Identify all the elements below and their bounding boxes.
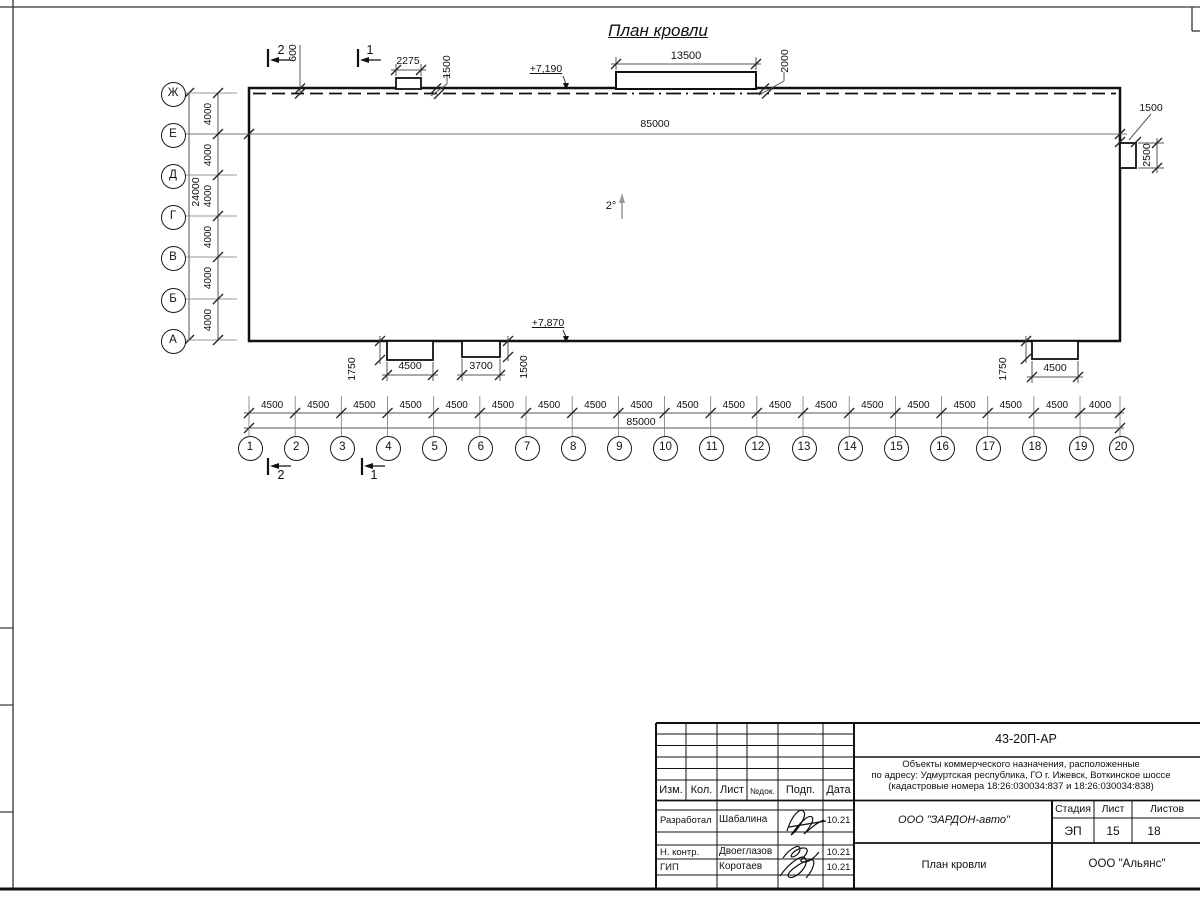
axis-bubble-11: 11 [699,436,724,461]
row-name: Коротаев [719,861,762,872]
axis-bubble-2: 2 [284,436,309,461]
axis-bubble-14: 14 [838,436,863,461]
contractor-name: ООО "Альянс" [1052,858,1200,870]
h-spacing-label: 4500 [435,400,479,412]
axis-bubble-17: 17 [976,436,1001,461]
section-1-top-label: 1 [361,44,379,57]
dim-canopy-small-height: 1500 [441,45,453,89]
company-name: ООО "ЗАРДОН-авто" [856,814,1052,826]
dim-line [563,76,566,84]
roof-slope-label: 2° [598,200,624,212]
dim-bottom-box3-width: 4500 [1031,362,1079,374]
v-spacing-label: 4000 [203,256,215,300]
section-1-bottom-label: 1 [365,469,383,482]
h-spacing-label: 4500 [1035,400,1079,412]
dim-bottom-box3-height: 1750 [997,347,1009,391]
row-name: Шабалина [719,814,767,825]
dim-bottom-box1-width: 4500 [386,360,434,372]
axis-bubble-15: 15 [884,436,909,461]
right-box [1120,143,1136,168]
elevation-bottom-label: +7,870 [520,317,576,329]
col-header-data: Дата [823,784,854,796]
h-spacing-label: 4500 [296,400,340,412]
row-role: Разработал [660,815,712,826]
sheet-number: 15 [1094,824,1132,838]
dim-right-box-width: 1500 [1123,102,1179,114]
col-header-list: Лист [717,784,747,796]
sheet-header: Лист [1094,803,1132,815]
h-spacing-label: 4500 [943,400,987,412]
canopy-large-box [616,72,756,89]
col-header-kol: Кол. [686,784,717,796]
elevation-top-label: +7,190 [518,63,574,75]
v-spacing-label: 4000 [203,298,215,342]
signature-korotaev [780,847,819,878]
project-description-line1: Объекты коммерческого назначения, распол… [852,759,1190,770]
axis-bubble-Ж: Ж [161,82,186,107]
dim-right-box-height: 2500 [1141,133,1153,177]
v-spacing-label: 4000 [203,133,215,177]
h-spacing-label: 4000 [1078,400,1122,412]
col-header-podp: Подп. [778,784,823,796]
h-spacing-label: 4500 [896,400,940,412]
axis-bubble-12: 12 [745,436,770,461]
axis-bubble-16: 16 [930,436,955,461]
h-spacing-label: 4500 [573,400,617,412]
sheets-total: 18 [1132,824,1176,838]
axis-bubble-13: 13 [792,436,817,461]
axis-bubble-9: 9 [607,436,632,461]
row-role: Н. контр. [660,847,699,858]
dim-total-height: 24000 [190,170,202,214]
dim-bottom-box2-width: 3700 [457,360,505,372]
v-spacing-label: 4000 [203,92,215,136]
page-title: План кровли [578,25,738,37]
dim-canopy-large-height: 2000 [779,39,791,83]
axis-bubble-В: В [161,246,186,271]
axis-bubble-А: А [161,329,186,354]
axis-bubble-4: 4 [376,436,401,461]
document-number: 43-20П-АР [856,732,1196,746]
h-spacing-label: 4500 [666,400,710,412]
drawing-sheet: План кровли 2° 85000 +7,190 +7,870 600 2… [0,0,1200,900]
row-role: ГИП [660,862,679,873]
drawing-title: План кровли [856,859,1052,871]
section-2-bottom-label: 2 [272,469,290,482]
row-name: Двоеглазов [719,846,772,857]
axis-bubble-19: 19 [1069,436,1094,461]
project-description: Объекты коммерческого назначения, распол… [852,759,1190,792]
dim-canopy-large-width: 13500 [658,50,714,62]
axis-bubble-18: 18 [1022,436,1047,461]
axis-bubble-3: 3 [330,436,355,461]
stage-value: ЭП [1052,824,1094,838]
h-spacing-label: 4500 [712,400,756,412]
v-spacing-label: 4000 [203,174,215,218]
sheets-header: Листов [1132,803,1200,815]
row-date: 10.21 [824,862,853,873]
h-spacing-label: 4500 [250,400,294,412]
section-2-top-label: 2 [272,44,290,57]
h-spacing-label: 4500 [758,400,802,412]
project-description-line2: по адресу: Удмуртская республика, ГО г. … [852,770,1190,781]
h-spacing-label: 4500 [389,400,433,412]
h-spacing-label: 4500 [989,400,1033,412]
axis-bubble-6: 6 [468,436,493,461]
axis-bubble-Д: Д [161,164,186,189]
signature-shabalina [787,810,826,835]
axis-bubble-8: 8 [561,436,586,461]
col-header-ndok: №док. [747,786,778,796]
axis-bubble-7: 7 [515,436,540,461]
v-spacing-label: 4000 [203,215,215,259]
h-spacing-label: 4500 [804,400,848,412]
axis-bubble-Б: Б [161,288,186,313]
h-spacing-label: 4500 [481,400,525,412]
h-spacing-label: 4500 [850,400,894,412]
axis-bubble-10: 10 [653,436,678,461]
canopy-small-box [396,78,421,89]
dim-bottom-box1-height: 1750 [346,347,358,391]
dim-canopy-small-width: 2275 [384,55,432,67]
axis-bubble-Г: Г [161,205,186,230]
axis-bubble-5: 5 [422,436,447,461]
col-header-izm: Изм. [656,784,686,796]
project-description-line3: (кадастровые номера 18:26:030034:837 и 1… [852,781,1190,792]
axis-bubble-20: 20 [1109,436,1134,461]
axis-bubble-Е: Е [161,123,186,148]
bottom-box-2 [462,341,500,357]
dim-building-length: 85000 [605,118,705,130]
bottom-box-3 [1032,341,1078,359]
dim-bottom-box2-height: 1500 [518,345,530,389]
axis-bubble-1: 1 [238,436,263,461]
row-date: 10.21 [824,847,853,858]
h-spacing-label: 4500 [342,400,386,412]
stage-header: Стадия [1052,803,1094,815]
dim-total-length: 85000 [591,416,691,428]
row-date: 10.21 [824,815,853,826]
bottom-box-1 [387,341,433,360]
h-spacing-label: 4500 [527,400,571,412]
h-spacing-label: 4500 [619,400,663,412]
